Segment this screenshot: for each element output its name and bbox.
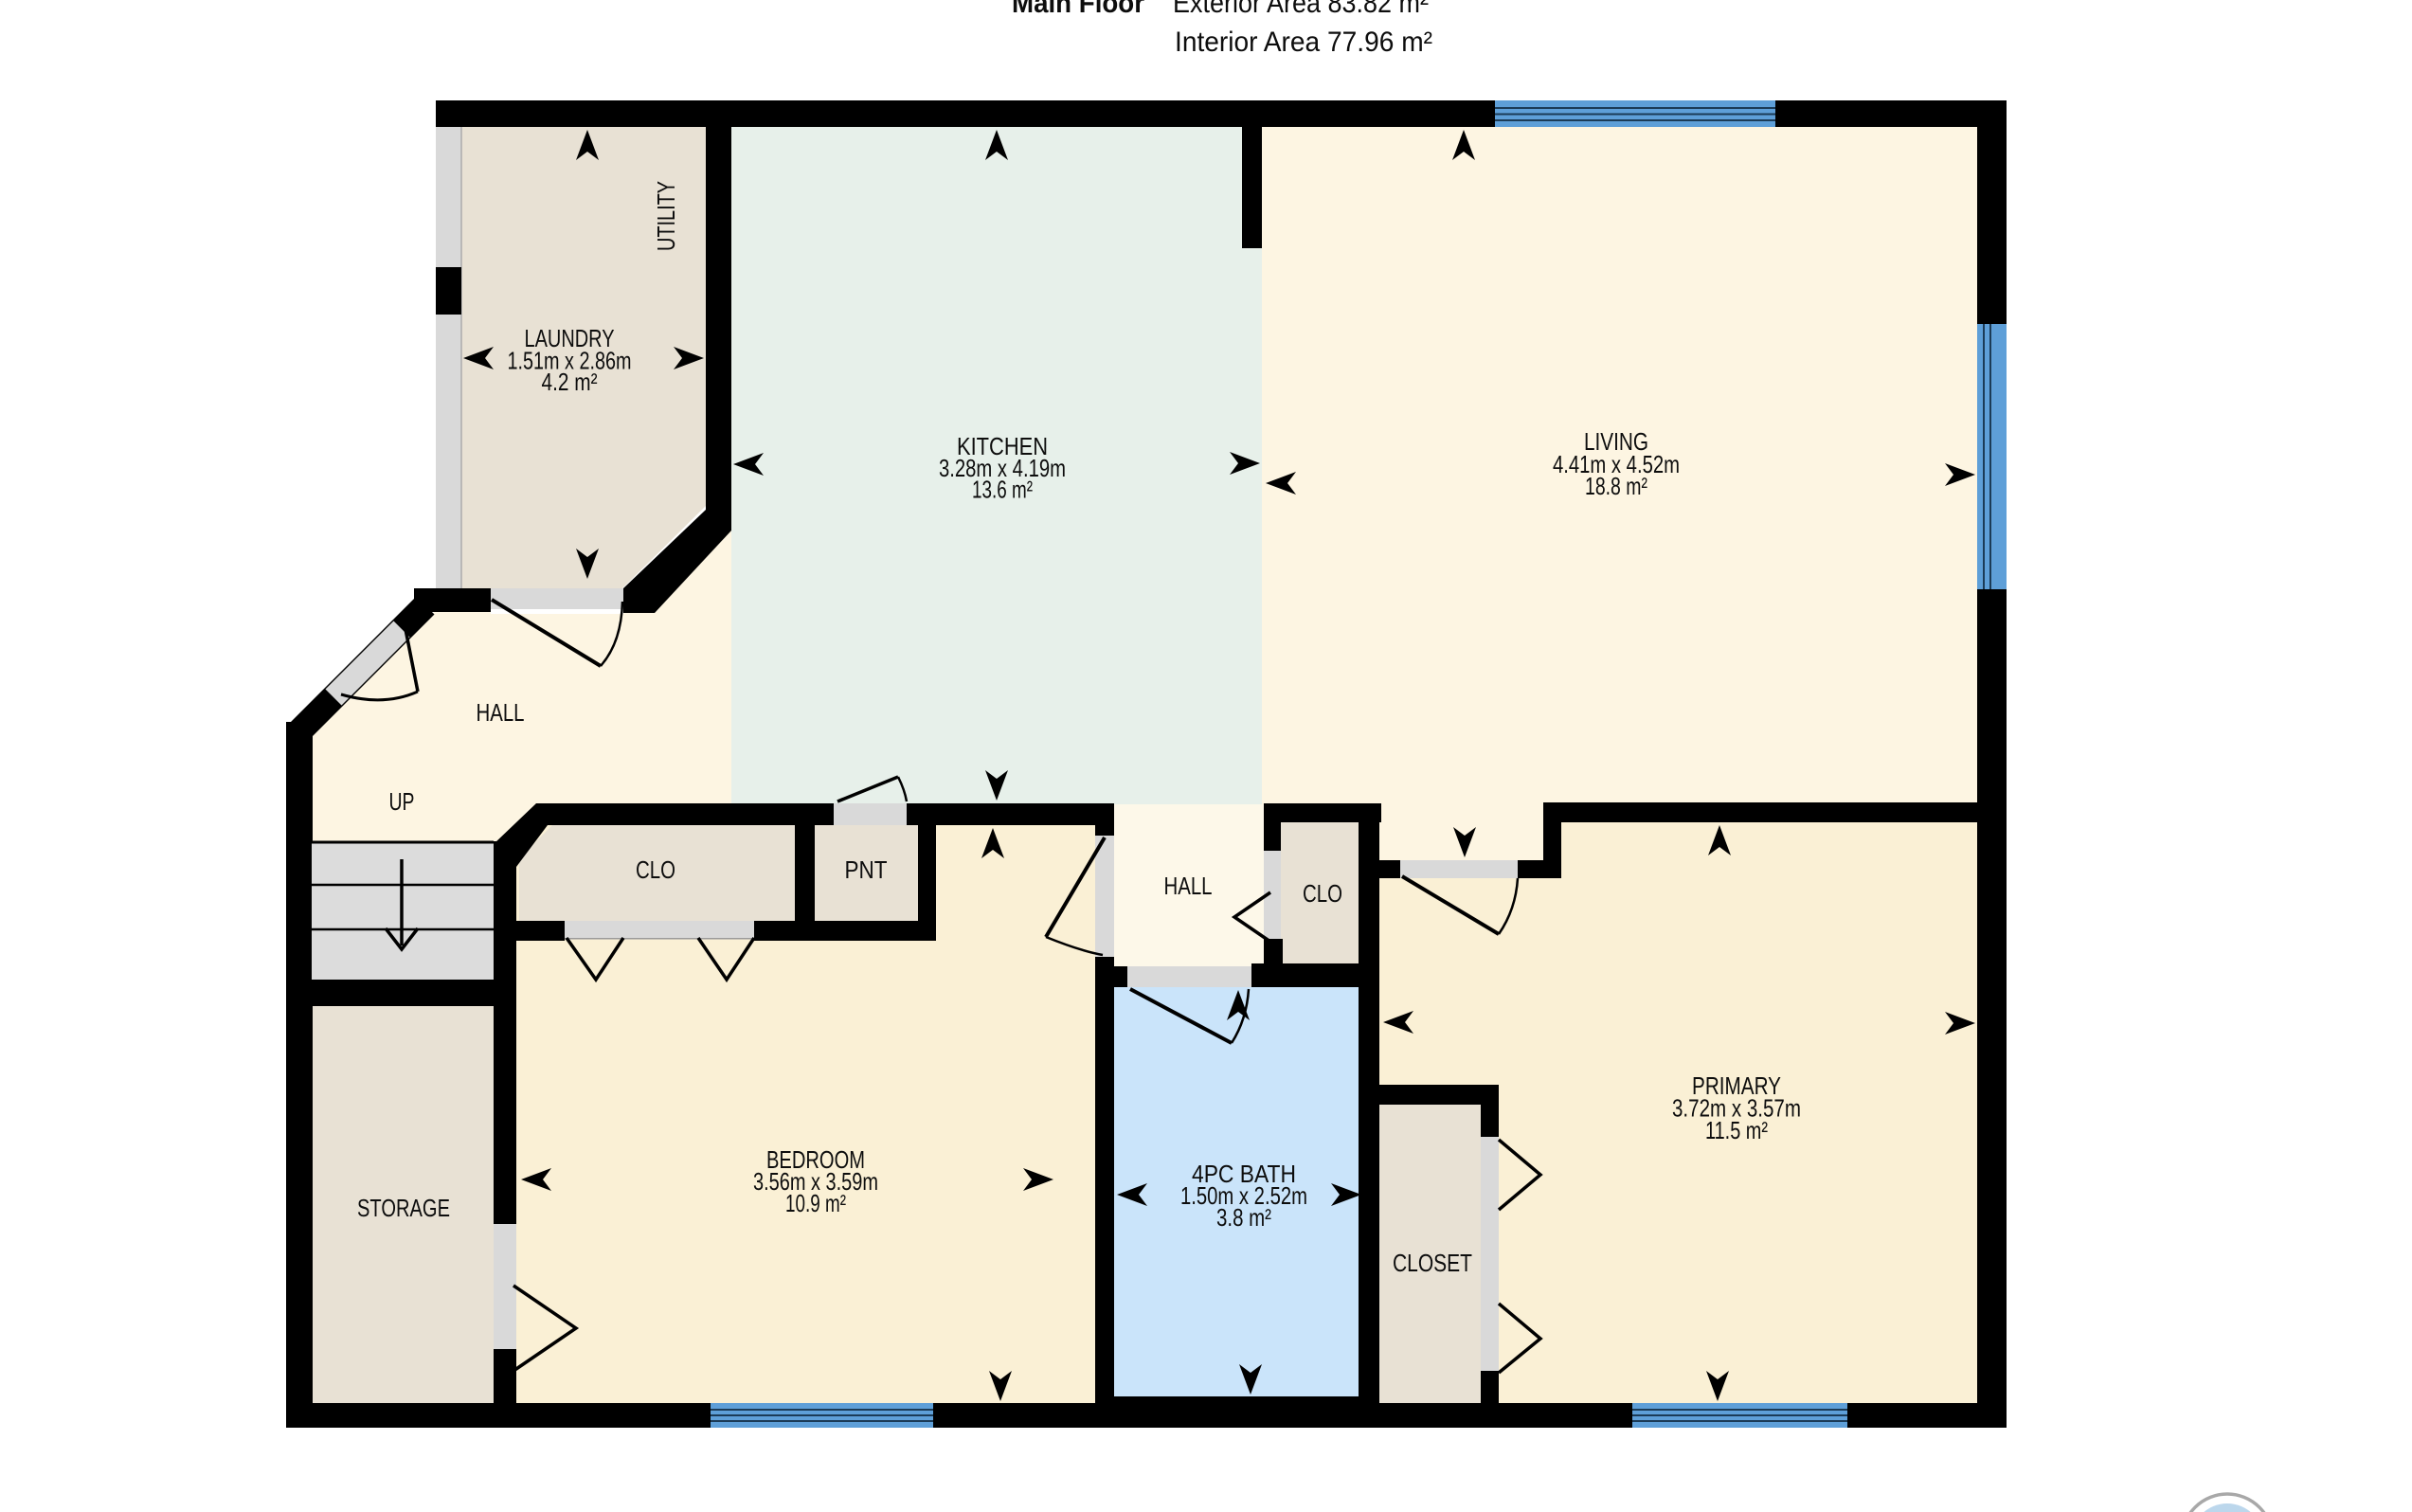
svg-text:UP: UP [389, 787, 415, 816]
svg-text:CLO: CLO [1303, 879, 1342, 908]
svg-text:10.9 m²: 10.9 m² [785, 1189, 846, 1217]
svg-text:CLOSET: CLOSET [1393, 1249, 1472, 1277]
svg-text:PNT: PNT [845, 855, 888, 884]
svg-text:Interior Area 77.96 m²: Interior Area 77.96 m² [1175, 27, 1432, 58]
svg-text:3.8 m²: 3.8 m² [1216, 1203, 1271, 1232]
svg-text:STORAGE: STORAGE [357, 1194, 450, 1222]
svg-text:18.8 m²: 18.8 m² [1585, 472, 1647, 500]
svg-text:11.5 m²: 11.5 m² [1705, 1116, 1768, 1144]
svg-text:Exterior Area 83.82 m²: Exterior Area 83.82 m² [1173, 0, 1429, 19]
svg-text:13.6 m²: 13.6 m² [972, 476, 1033, 504]
svg-text:UTILITY: UTILITY [652, 181, 680, 251]
svg-text:HALL: HALL [1164, 872, 1213, 900]
svg-text:4.2 m²: 4.2 m² [542, 368, 598, 396]
svg-text:Main Floor: Main Floor [1012, 0, 1144, 19]
svg-text:CLO: CLO [636, 855, 675, 884]
svg-text:HALL: HALL [477, 698, 525, 727]
